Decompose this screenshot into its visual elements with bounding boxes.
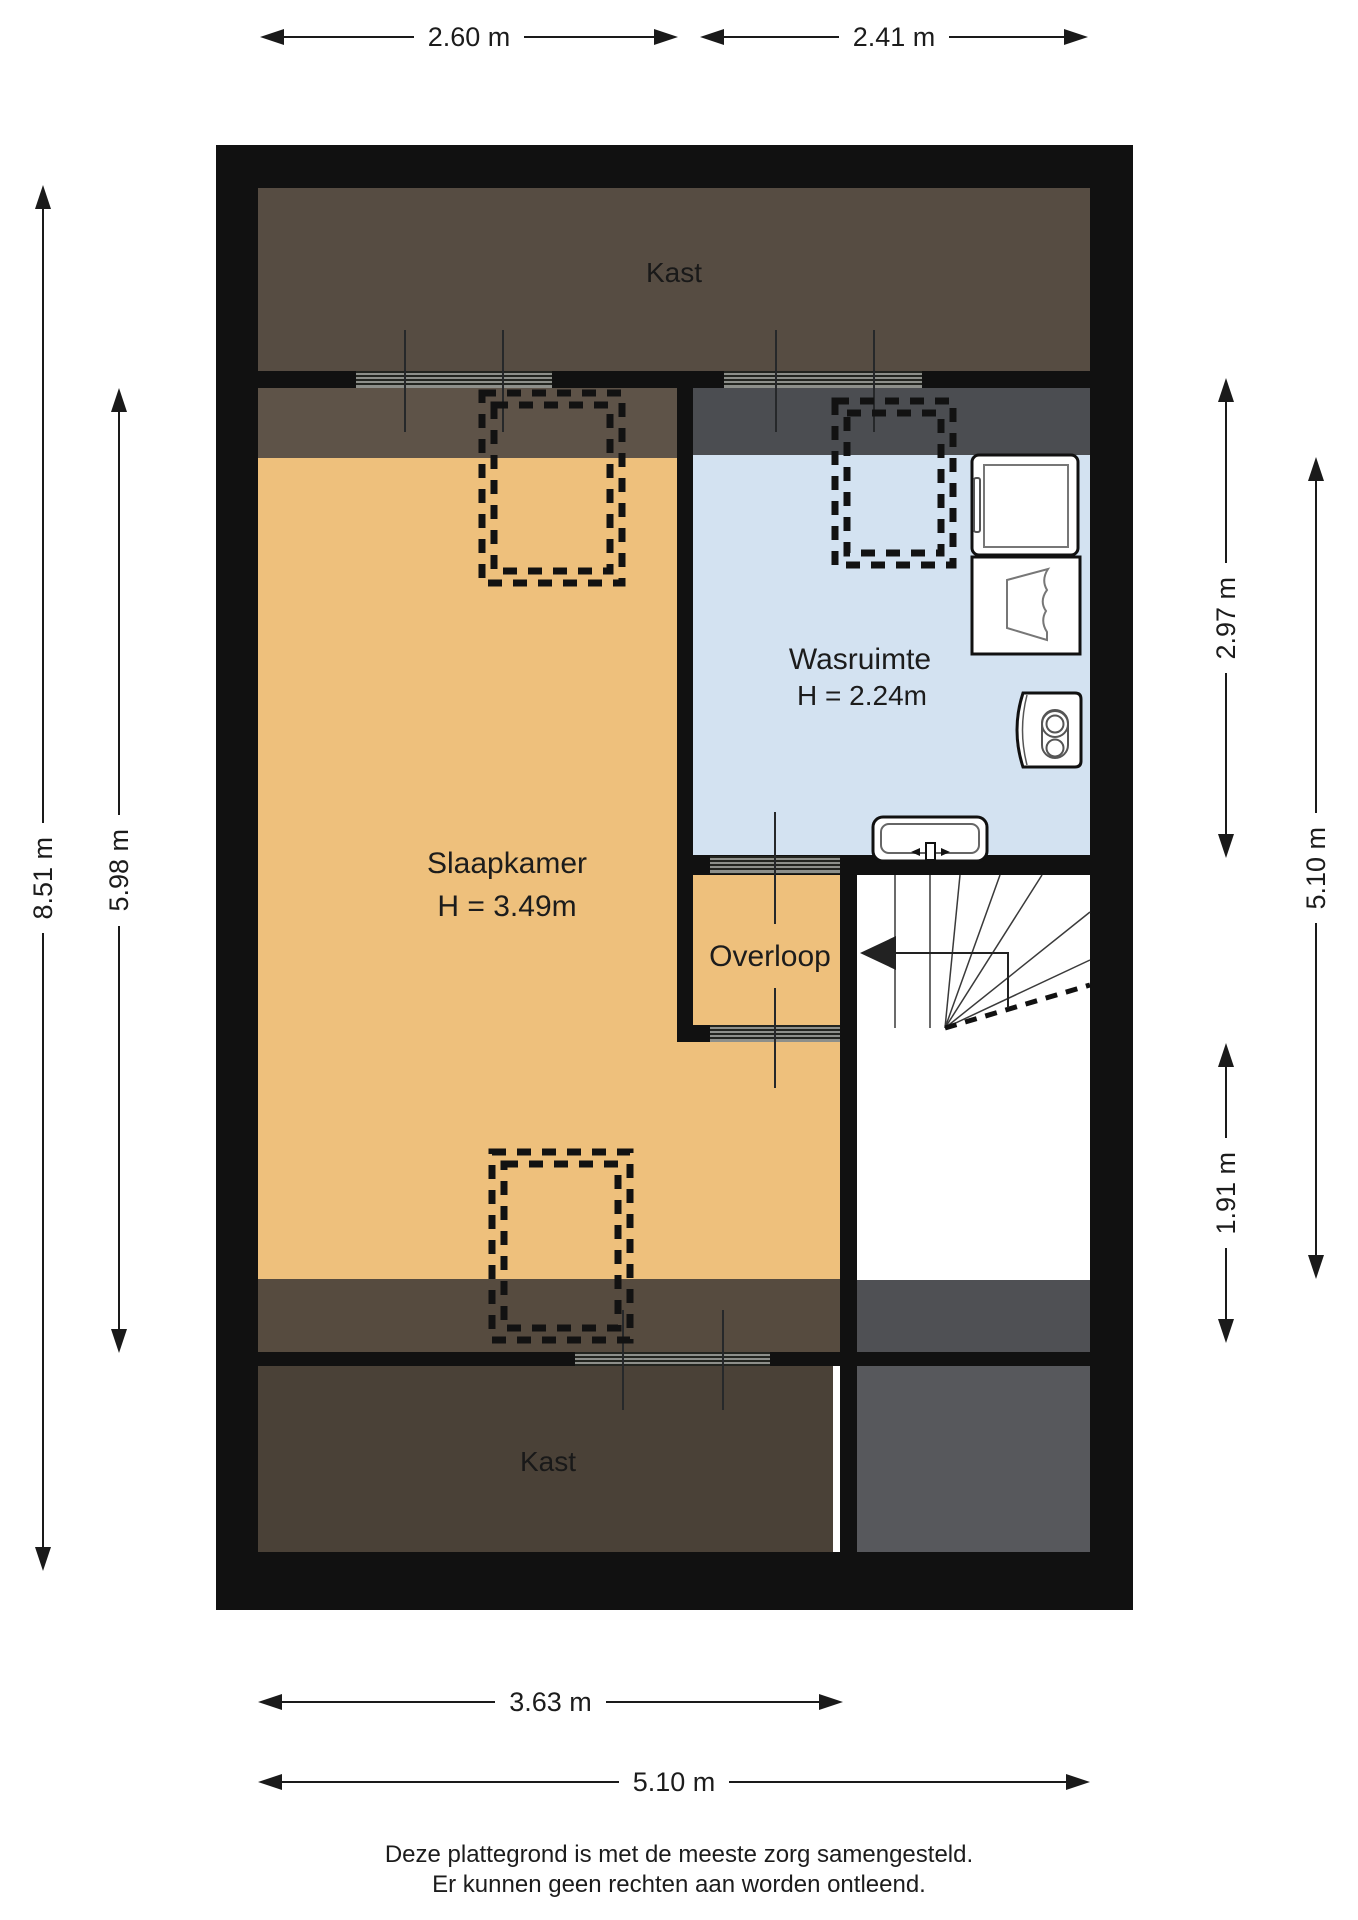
- arrow-left-icon: [700, 29, 724, 45]
- outer-wall-bottom: [216, 1552, 1133, 1610]
- dimension-label: 2.60 m: [414, 22, 525, 53]
- floorplan-page: Kast Slaapkamer H = 3.49m Wasruimte H = …: [0, 0, 1358, 1920]
- room-height-wasruimte: H = 2.24m: [797, 680, 927, 712]
- arrow-up-icon: [1218, 1043, 1234, 1067]
- sliding-door-rail-kast-top-right: [724, 371, 922, 388]
- room-label-kast-top: Kast: [646, 257, 702, 289]
- arrow-left-icon: [258, 1774, 282, 1790]
- arrow-down-icon: [35, 1547, 51, 1571]
- door-tick: [622, 1310, 624, 1410]
- outer-wall-top: [216, 145, 1133, 188]
- outer-wall-right: [1090, 145, 1133, 1610]
- room-height-slaapkamer: H = 3.49m: [437, 890, 576, 924]
- door-tick: [722, 1310, 724, 1410]
- door-tick: [404, 330, 406, 432]
- dimension-label: 1.91 m: [1211, 1138, 1242, 1249]
- roof-strip-bottom-left: [258, 1279, 840, 1352]
- arrow-left-icon: [260, 29, 284, 45]
- disclaimer: Deze plattegrond is met de meeste zorg s…: [0, 1840, 1358, 1900]
- arrow-right-icon: [1066, 1774, 1090, 1790]
- dimension-label: 2.41 m: [839, 22, 950, 53]
- outer-wall-left: [216, 145, 258, 1610]
- arrow-down-icon: [111, 1329, 127, 1353]
- sliding-door-rail-kast-top-left: [356, 371, 552, 388]
- arrow-right-icon: [654, 29, 678, 45]
- arrow-up-icon: [35, 185, 51, 209]
- arrow-up-icon: [1218, 378, 1234, 402]
- roof-strip-bottom-right: [857, 1280, 1090, 1352]
- dimension-bottom-outer: 5.10 m: [258, 1765, 1090, 1799]
- dimension-label: 5.98 m: [104, 815, 135, 926]
- room-label-slaapkamer: Slaapkamer: [427, 847, 587, 881]
- wall-overloop-west: [677, 857, 693, 1042]
- disclaimer-line-2: Er kunnen geen rechten aan worden ontlee…: [0, 1870, 1358, 1900]
- arrow-left-icon: [258, 1694, 282, 1710]
- arrow-down-icon: [1218, 1319, 1234, 1343]
- dimension-label: 5.10 m: [619, 1767, 730, 1798]
- dimension-label: 3.63 m: [495, 1687, 606, 1718]
- arrow-right-icon: [819, 1694, 843, 1710]
- disclaimer-line-1: Deze plattegrond is met de meeste zorg s…: [0, 1840, 1358, 1870]
- arrow-down-icon: [1218, 834, 1234, 858]
- wall-divider-slaapkamer-wasruimte: [677, 371, 693, 857]
- door-tick: [774, 988, 776, 1088]
- arrow-up-icon: [111, 388, 127, 412]
- dimension-right-lower: 1.91 m: [1208, 1043, 1244, 1343]
- room-label-overloop: Overloop: [709, 940, 831, 974]
- roof-strip-top-left: [258, 388, 677, 458]
- door-tick: [502, 330, 504, 432]
- arrow-up-icon: [1308, 457, 1324, 481]
- dimension-label: 2.97 m: [1211, 563, 1242, 674]
- void-bottom-right: [857, 1366, 1090, 1552]
- dimension-bottom-inner: 3.63 m: [258, 1685, 843, 1719]
- arrow-down-icon: [1308, 1255, 1324, 1279]
- dimension-label: 5.10 m: [1301, 813, 1332, 924]
- dimension-right-outer: 5.10 m: [1298, 457, 1334, 1279]
- stairwell: [857, 875, 1090, 1280]
- dimension-label: 8.51 m: [28, 823, 59, 934]
- room-label-kast-bottom: Kast: [520, 1446, 576, 1478]
- sliding-door-rail-kast-bottom: [575, 1352, 770, 1366]
- dimension-top-left: 2.60 m: [260, 20, 678, 54]
- door-tick: [873, 330, 875, 432]
- dimension-right-wasruimte: 2.97 m: [1208, 378, 1244, 858]
- roof-strip-top-right: [693, 388, 1090, 455]
- arrow-right-icon: [1064, 29, 1088, 45]
- wall-stairwell-west: [840, 857, 857, 1552]
- dimension-top-right: 2.41 m: [700, 20, 1088, 54]
- door-tick: [775, 330, 777, 432]
- dimension-left-outer: 8.51 m: [25, 185, 61, 1571]
- dimension-left-inner: 5.98 m: [101, 388, 137, 1353]
- door-tick: [774, 812, 776, 924]
- room-label-wasruimte: Wasruimte: [789, 643, 931, 677]
- wall-wasruimte-south: [840, 855, 1090, 875]
